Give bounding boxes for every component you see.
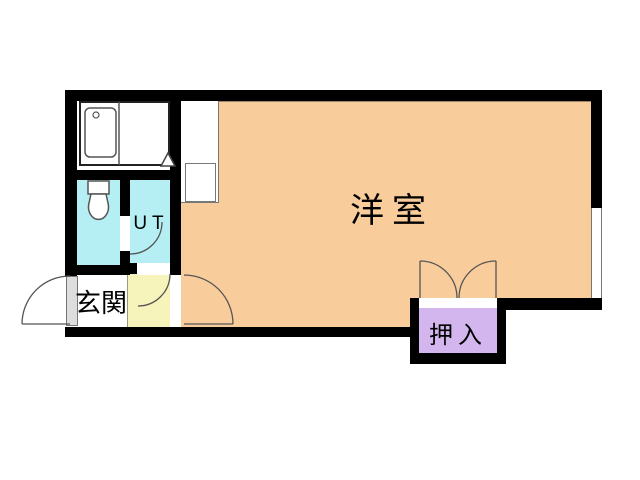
wall-right-upper xyxy=(591,90,602,208)
appliance-box xyxy=(185,163,216,202)
wall-bottom-left xyxy=(65,327,410,337)
wall-left xyxy=(65,90,77,277)
main-room-door-opening xyxy=(170,275,181,325)
wall-bottom-right xyxy=(506,298,602,310)
room-main-floor-extension xyxy=(181,298,410,327)
wall-top xyxy=(65,90,602,101)
utility-door-opening xyxy=(137,263,170,275)
closet-door-opening xyxy=(419,298,497,308)
kitchen-floor xyxy=(77,101,170,170)
toilet-floor xyxy=(77,180,120,265)
entry-door-swing-arc xyxy=(22,276,70,324)
room-label-main: 洋室 xyxy=(340,185,444,229)
room-label-entrance: 玄関 xyxy=(71,283,131,319)
window-opening xyxy=(591,208,602,298)
corridor-floor xyxy=(127,274,170,327)
wall-mid-vertical xyxy=(170,101,181,275)
wall-kitchen-bottom xyxy=(77,170,181,180)
floor-plan: 洋室 玄関 UT 押入 xyxy=(0,0,640,480)
wall-toilet-bottom xyxy=(65,265,130,275)
room-label-utility: UT xyxy=(129,211,173,237)
room-label-closet: 押入 xyxy=(416,318,500,346)
